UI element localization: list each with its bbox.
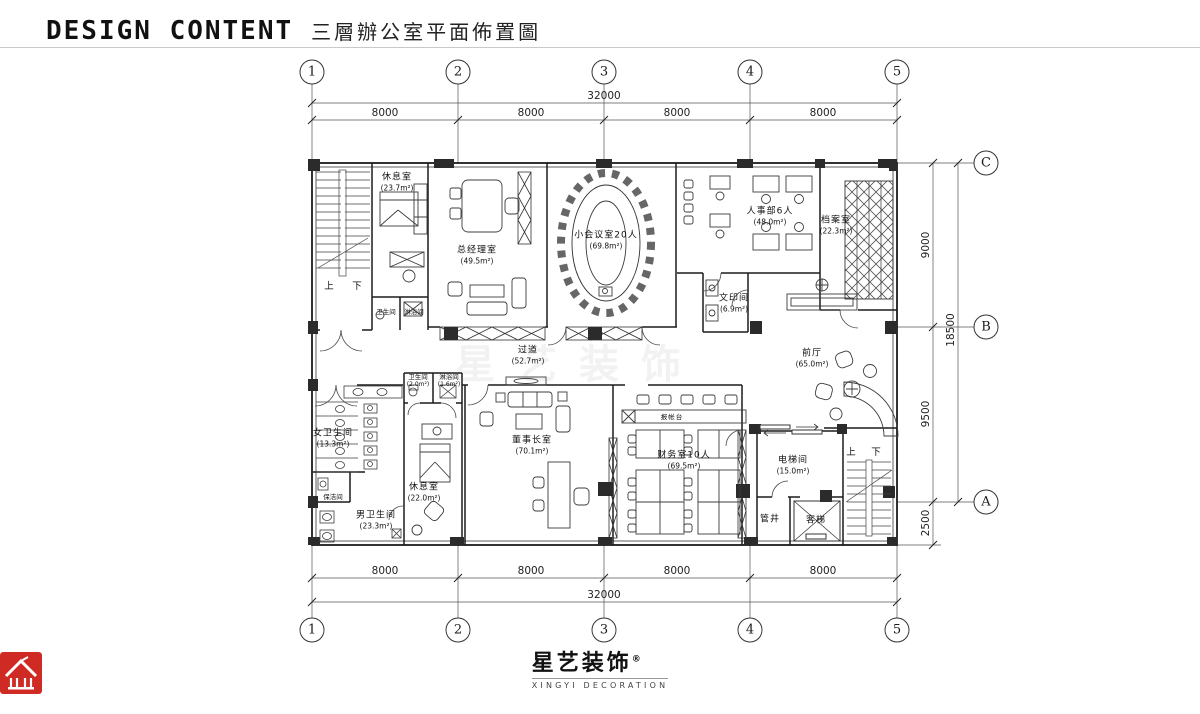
dim-top-seg-2: 8000 (518, 107, 545, 119)
archive-shelving (845, 181, 893, 299)
dim-top-seg-1: 8000 (372, 107, 399, 119)
room-label-rest-bottom: 休息室 (22.0m²) (408, 483, 441, 504)
dim-right-seg-1: 9000 (920, 232, 932, 259)
print-room-fixtures (706, 280, 718, 321)
rest-bottom-furniture (412, 424, 452, 535)
dim-top-seg-3: 8000 (664, 107, 691, 119)
dim-top-overall: 32000 (587, 90, 620, 102)
grid-bubble-A: A (974, 490, 999, 515)
room-label-archive: 档案室 (22.3m²) (820, 216, 853, 237)
stairs-top-left (316, 170, 370, 276)
room-label-hr: 人事部6人 (48.0m²) (747, 207, 794, 228)
stair-down-label-bottomright: 下 (871, 444, 881, 458)
dim-bottom-seg-2: 8000 (518, 565, 545, 577)
room-label-print: 文印间 (6.9m²) (719, 294, 749, 315)
grid-bubble-5-top: 5 (885, 60, 910, 85)
dim-bottom-seg-3: 8000 (664, 565, 691, 577)
dim-right-overall: 18500 (945, 313, 957, 346)
grid-bubble-C: C (974, 151, 999, 176)
grid-bubble-5-bottom: 5 (885, 618, 910, 643)
door-swings (315, 273, 858, 520)
room-label-corridor: 过道 (52.7m²) (512, 346, 545, 367)
room-label-gm-office: 总经理室 (49.5m²) (457, 246, 497, 267)
dim-bottom-overall: 32000 (587, 589, 620, 601)
stair-up-label-bottomright: 上 (846, 444, 856, 458)
room-label-shower-top: 淋浴间 (404, 308, 424, 316)
label-counter: 报帐台 (661, 413, 684, 421)
grid-bubble-3-bottom: 3 (592, 618, 617, 643)
logo-house-icon (0, 652, 42, 694)
room-label-wc-women: 女卫生间 (13.3m²) (313, 429, 353, 450)
room-label-lobby: 前厅 (65.0m²) (796, 349, 829, 370)
room-label-lift: 客梯 (806, 515, 826, 526)
grid-bubble-4-top: 4 (738, 60, 763, 85)
grid-bubble-1-bottom: 1 (300, 618, 325, 643)
grid-bubble-2-top: 2 (446, 60, 471, 85)
floor-plan-sheet: { "header": { "title_en": "DESIGN CONTEN… (0, 0, 1200, 714)
grid-bubble-3-top: 3 (592, 60, 617, 85)
grid-bubble-4-bottom: 4 (738, 618, 763, 643)
stair-up-label-topleft: 上 (324, 278, 334, 292)
room-label-rest-top: 休息室 (23.7m²) (381, 173, 414, 194)
dim-right-seg-2: 9500 (920, 401, 932, 428)
room-label-finance: 财务室10人 (69.5m²) (657, 451, 710, 472)
dim-right-seg-3: 2500 (920, 510, 932, 537)
room-label-shaft: 管井 (760, 514, 780, 525)
stair-down-label-topleft: 下 (352, 278, 362, 292)
room-label-chairman: 董事长室 (70.1m²) (512, 436, 552, 457)
grid-bubble-2-bottom: 2 (446, 618, 471, 643)
room-label-wc-small: 卫生间 (2.0m²) (407, 373, 429, 389)
room-label-wc-top: 卫生间 (376, 308, 396, 316)
watermark-text: 星艺装饰 (455, 332, 755, 390)
dim-bottom-seg-4: 8000 (810, 565, 837, 577)
room-label-elevator-hall: 电梯间 (15.0m²) (777, 456, 810, 477)
room-label-shower-small: 淋浴间 (1.6m²) (438, 373, 460, 389)
dim-bottom-seg-1: 8000 (372, 565, 399, 577)
room-label-cleaning: 保洁间 (323, 493, 343, 501)
room-label-wc-men: 男卫生间 (23.3m²) (356, 511, 396, 532)
room-label-meeting: 小会议室20人 (69.8m²) (574, 231, 637, 252)
grid-bubble-1-top: 1 (300, 60, 325, 85)
sliding-doors (760, 424, 822, 436)
dim-top-seg-4: 8000 (810, 107, 837, 119)
rest-top-furniture (376, 184, 427, 319)
grid-bubble-B: B (974, 315, 999, 340)
